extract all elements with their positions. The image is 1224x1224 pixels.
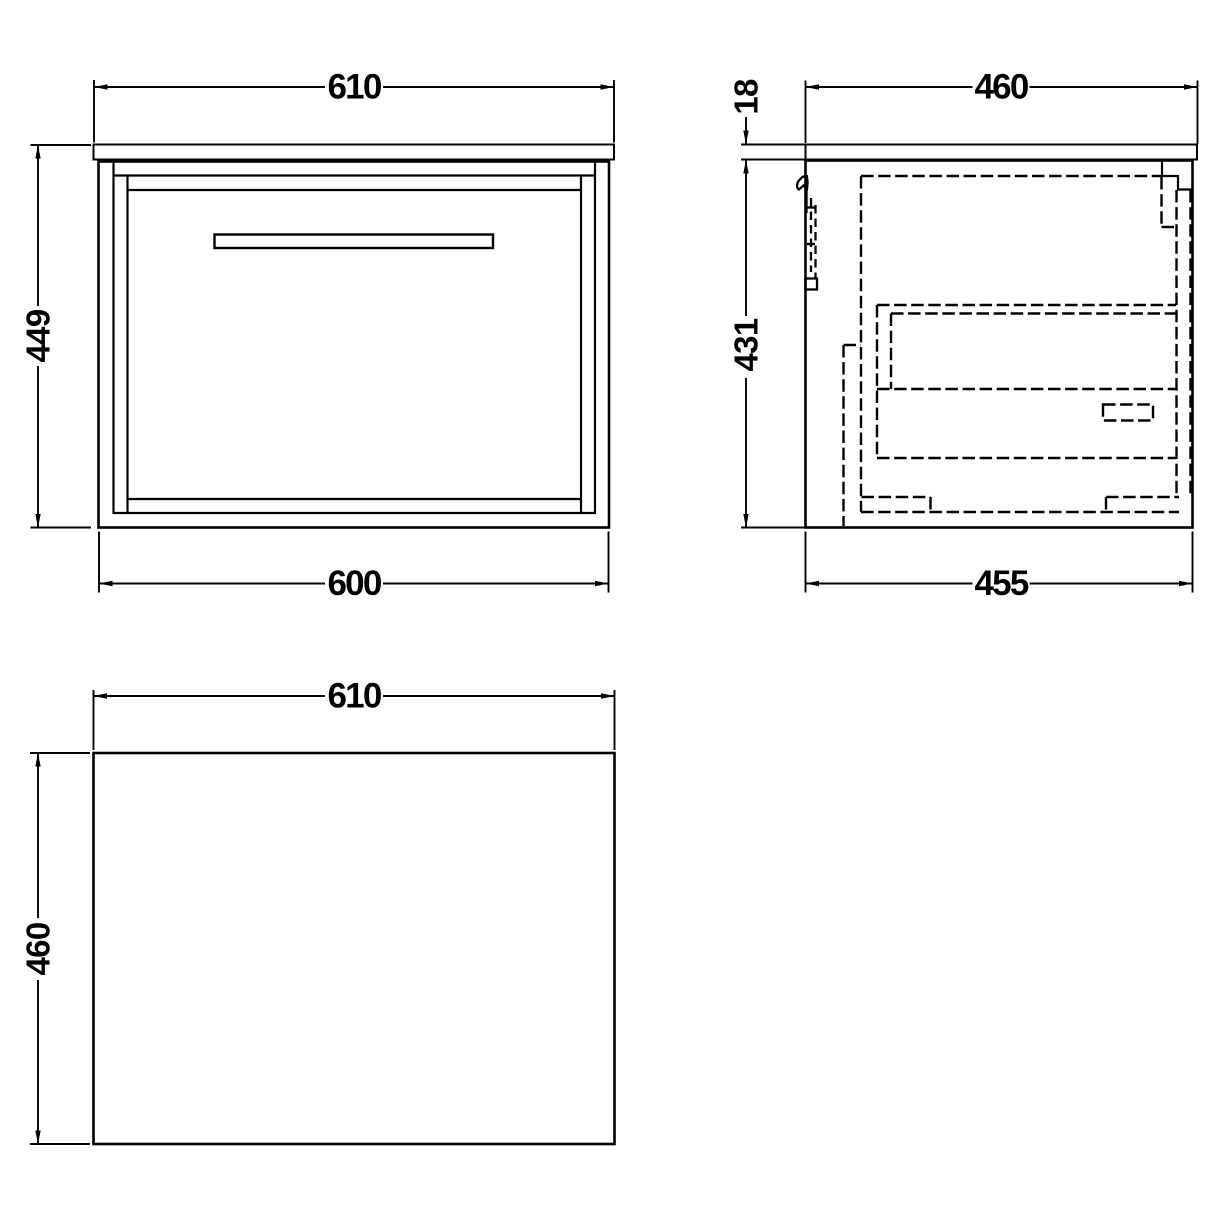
- svg-text:610: 610: [328, 68, 382, 107]
- svg-text:455: 455: [975, 564, 1029, 603]
- svg-text:460: 460: [20, 923, 57, 976]
- svg-text:460: 460: [975, 68, 1029, 107]
- svg-text:18: 18: [728, 79, 765, 115]
- svg-text:610: 610: [328, 677, 382, 716]
- svg-text:431: 431: [728, 318, 765, 371]
- svg-text:600: 600: [328, 564, 382, 603]
- svg-text:449: 449: [20, 309, 57, 362]
